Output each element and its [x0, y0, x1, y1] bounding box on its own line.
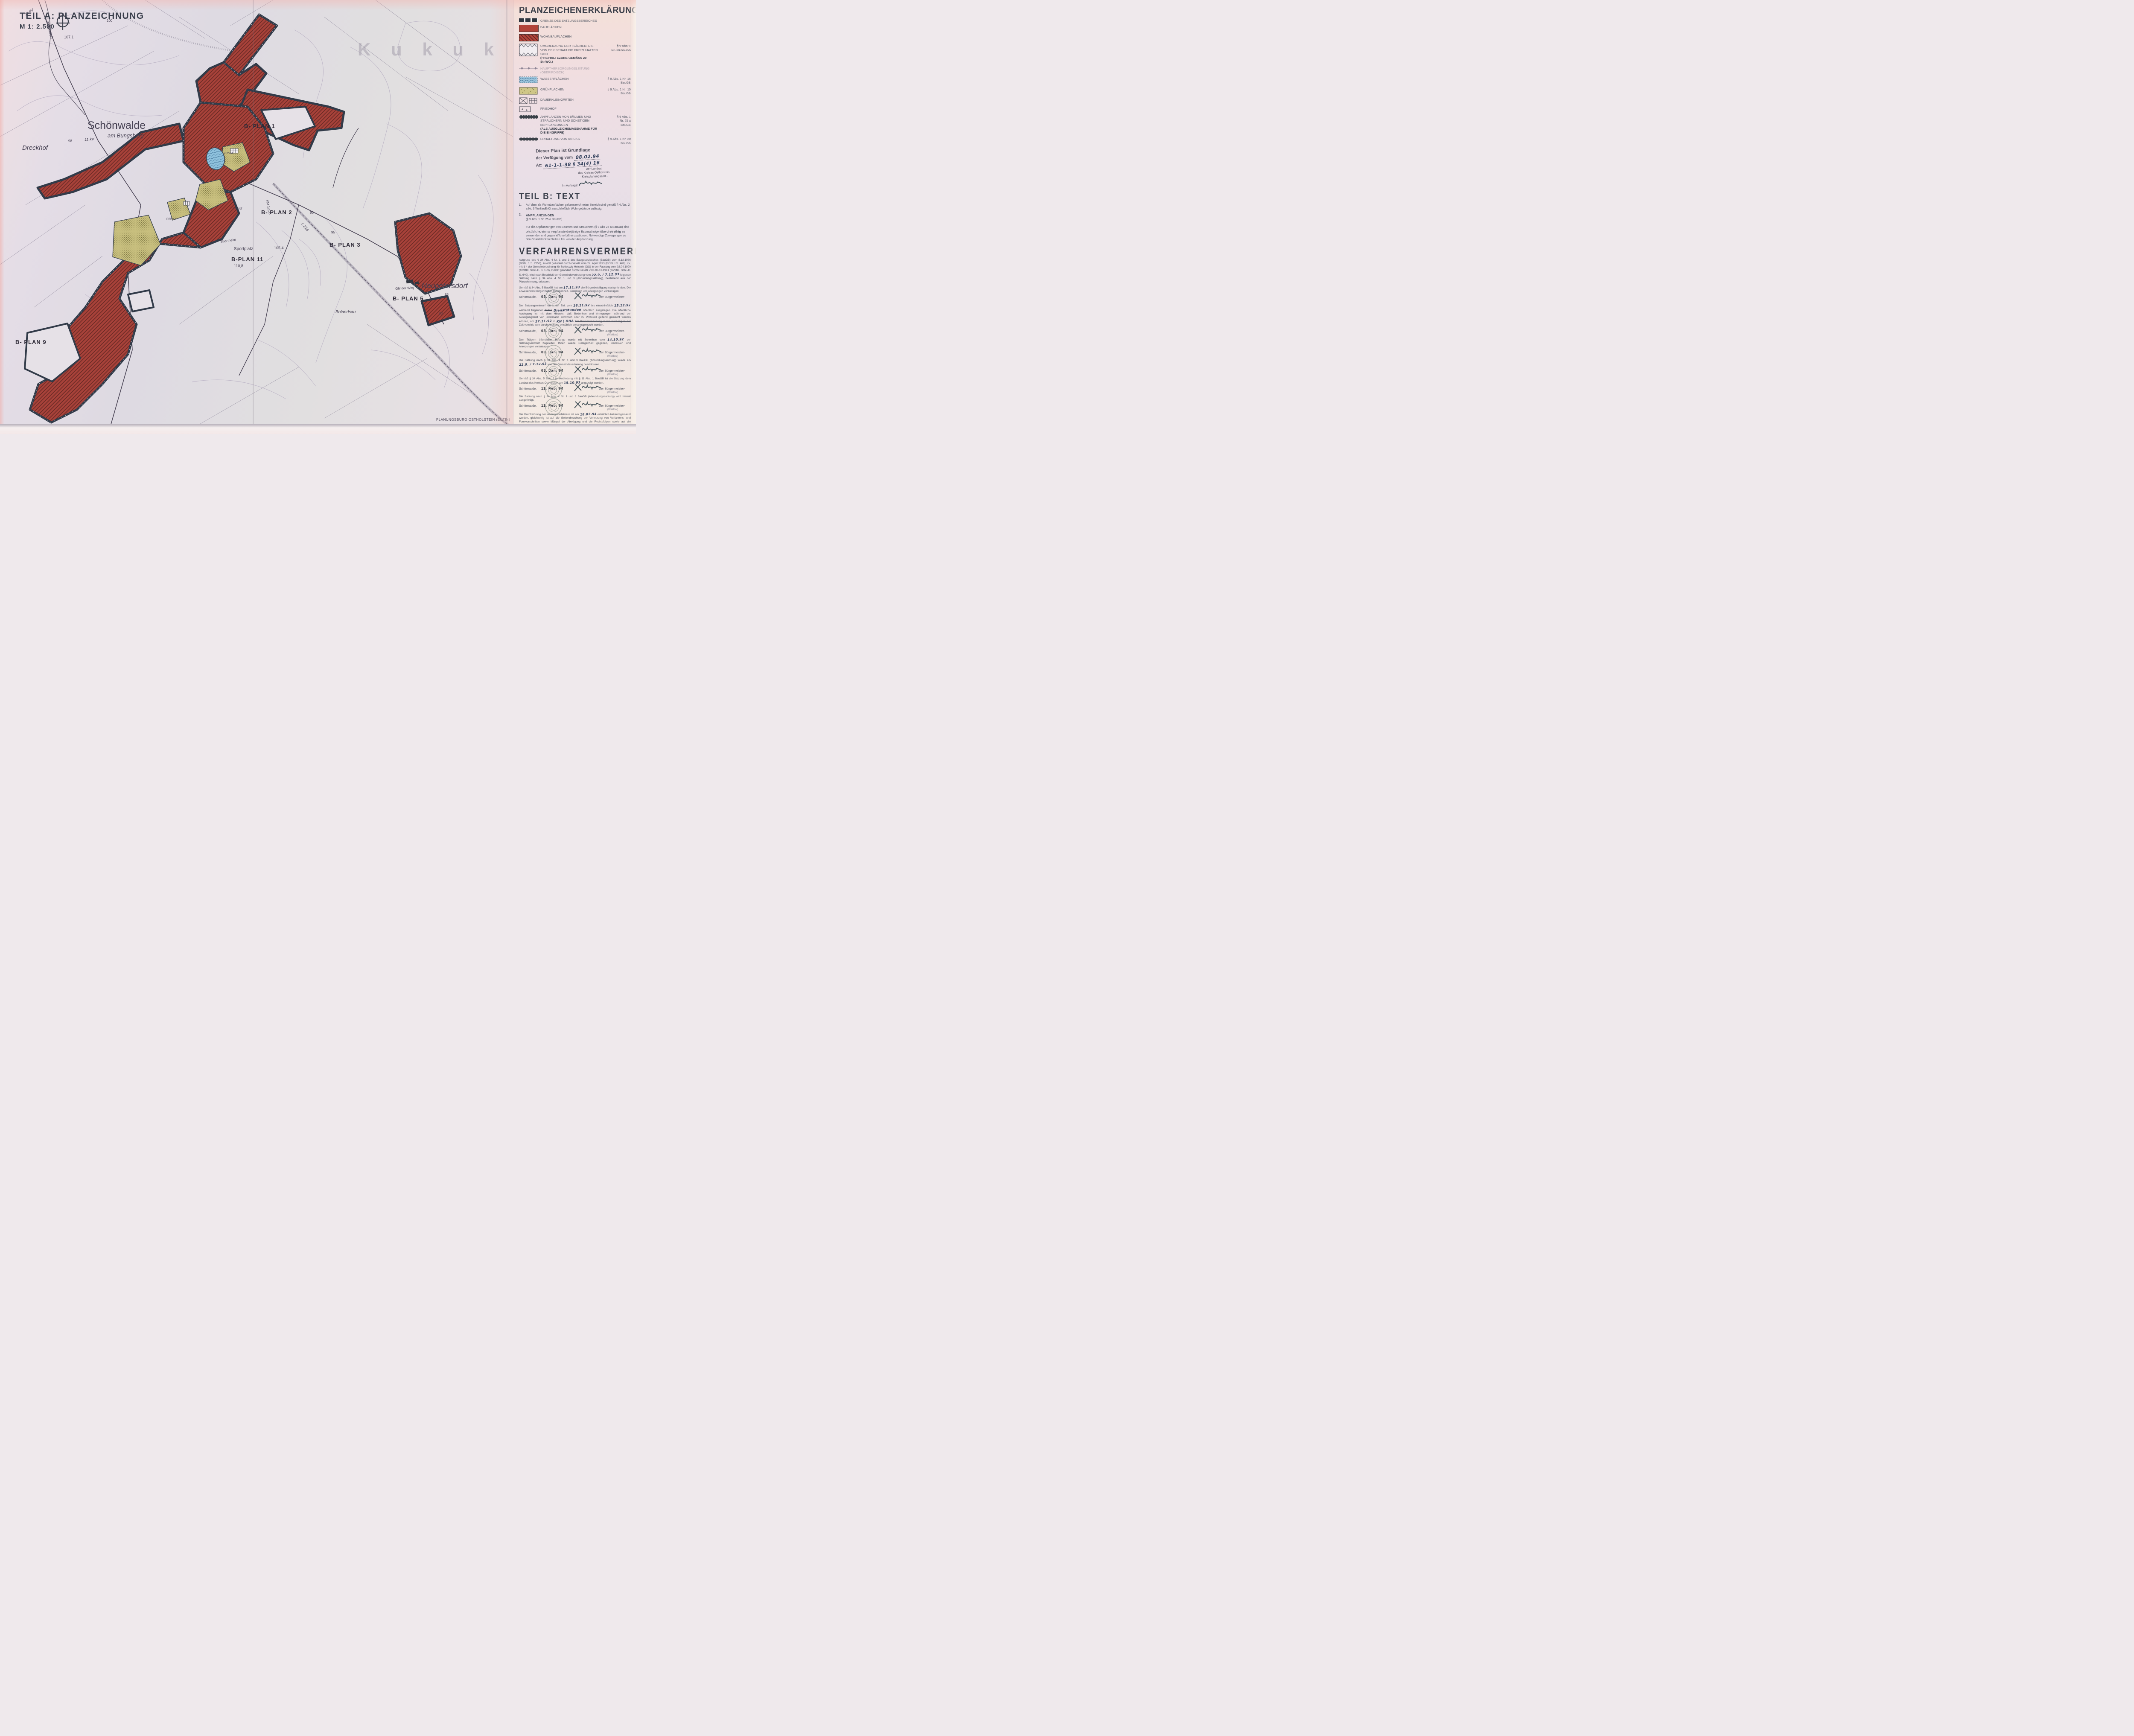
bauflaechen-swatch-icon: [519, 25, 539, 32]
signature-row-5: Schönwalde,11. Feb. 94Der Bürgermeister-…: [519, 387, 631, 394]
contour-80: 80: [439, 312, 443, 315]
privat-label-2: PRIVAT: [233, 207, 242, 210]
privat-label-3: PRIVAT: [166, 218, 176, 221]
part-a-title: TEIL A: PLANZEICHNUNG: [20, 11, 144, 21]
legend-heading: PLANZEICHENERKLÄRUNG: [519, 5, 631, 16]
wohnbauflaechen-swatch-icon: [519, 34, 539, 41]
boundary-swatch-icon: [519, 18, 538, 22]
fold-crease: [506, 0, 507, 424]
friedhof-swatch-icon: [519, 106, 538, 112]
sportplatz-label: Sportplatz: [234, 247, 253, 251]
legend-item-hauptversorgung: HAUPTVERSORGUNGSLEITUNG (OBERIRDISCH): [519, 66, 631, 75]
background-watermark: K u k u k: [358, 39, 501, 60]
legend-item-bauflaechen: BAUFLÄCHEN: [519, 25, 631, 32]
approval-stamp: Dieser Plan ist Grundlage der Verfügung …: [536, 146, 631, 188]
signature-icon: [574, 382, 603, 393]
privat-label-1: PRIVAT: [224, 152, 233, 155]
signature-icon: [574, 325, 603, 335]
legend-item-boundary: GRENZE DES SATZUNGSBEREICHES: [519, 18, 631, 23]
powerline-swatch-icon: [519, 66, 538, 70]
place-label-dreckhof: Dreckhof: [22, 144, 48, 151]
teil-b-item-2: 2. ANPFLANZUNGEN (§ 9 Abs. 1 Nr. 25 a Ba…: [519, 213, 631, 242]
legend-item-friedhof: FRIEDHOF: [519, 106, 631, 112]
signature-row-4: Schönwalde,03. Jan. 94Der Bürgermeister-…: [519, 369, 631, 376]
legend-item-wohnbauflaechen: WOHNBAUFLÄCHEN: [519, 34, 631, 41]
contour-85: 85: [445, 293, 449, 297]
signature-row-3: Schönwalde,03. Jan. 94Der Bürgermeister-…: [519, 350, 631, 358]
contour-95: 95: [331, 230, 335, 234]
place-label-neupetersdorf: Neupetersdorf: [422, 282, 468, 290]
contour-98: 98: [68, 139, 72, 143]
bplan5-label: B- PLAN 5: [393, 295, 424, 302]
scan-pink-band-left: [0, 0, 4, 434]
legend-item-anpflanzungen: ANPFLANZEN VON BÄUMEN UND STRÄUCHERN UND…: [519, 114, 631, 134]
legend-panel: PLANZEICHENERKLÄRUNG GRENZE DES SATZUNGS…: [513, 0, 636, 434]
legend-item-dauerkleingaerten: DAUERKLEINGÄRTEN: [519, 97, 631, 104]
legend-item-wasserflaechen: WASSERFLÄCHEN § 9 Abs. 1 Nr. 16 BauGB: [519, 76, 631, 85]
signature-icon: [574, 364, 603, 375]
built-area-ne-arm: [224, 15, 277, 75]
legend-item-freihaltezone: UMGRENZUNG DER FLÄCHEN, DIE VON DER BEBA…: [519, 44, 631, 64]
signature-row-6: Schönwalde,11. Feb. 94Der Bürgermeister-…: [519, 404, 631, 411]
signature-row-2: Schönwalde,03. Jan. 94Der Bürgermeister-…: [519, 329, 631, 336]
verfahren-p3: Der Satzungsentwurf hat in der Zeit vom …: [519, 303, 631, 327]
scan-pink-band-right: [490, 0, 513, 434]
powerline-label-11kv: 11 kV: [85, 137, 94, 142]
map-canvas: [0, 0, 513, 424]
built-up-areas: [30, 15, 461, 422]
bplan11-label: B-PLAN 11: [231, 256, 263, 262]
planting-beads-swatch-icon: [519, 114, 539, 119]
contour-90: 90: [310, 211, 314, 215]
bplan3-label: B- PLAN 3: [329, 242, 361, 248]
elevation-105-4: 105,4: [274, 246, 284, 250]
knick-beads-swatch-icon: [519, 137, 539, 142]
bplan1-label: B- PLAN 1: [244, 123, 275, 129]
kleingarten-swatch-icon: [519, 97, 539, 104]
plan-sheet: TEIL A: PLANZEICHNUNG M 1: 2.500 K u k u…: [0, 0, 636, 434]
small-white-pocket: [128, 290, 154, 312]
legend-item-gruenflaechen: GRÜNFLÄCHEN § 9 Abs. 1 Nr. 15 BauGB: [519, 87, 631, 96]
water-swatch-icon: [519, 76, 538, 83]
signature-icon: [578, 178, 603, 187]
place-label-am-bungsberg: am Bungsberg: [108, 132, 144, 139]
signature-row-1: Schönwalde,03. Jan. 94Der Bürgermeister-: [519, 295, 631, 302]
verfahren-p1: Aufgrund des § 34 Abs. 4 Nr. 1 und 3 des…: [519, 259, 631, 284]
contour-100: 100: [107, 19, 112, 23]
built-area-bplan5: [422, 296, 454, 325]
place-label-schoenwalde: Schönwalde: [87, 119, 146, 132]
legend-item-knicks: ERHALTUNG VON KNICKS § 9 Abs. 1 Nr. 20 B…: [519, 137, 631, 145]
verfahrensvermerke-section: VERFAHRENSVERMERKE Aufgrund des § 34 Abs…: [519, 246, 631, 434]
bplan2-label: B- PLAN 2: [261, 209, 292, 216]
sheet-bottom-edge: [0, 424, 636, 434]
signature-icon: [574, 346, 603, 356]
teil-b-heading: TEIL B: TEXT: [519, 192, 631, 202]
freihaltezone-swatch-icon: [519, 44, 538, 56]
green-swatch-icon: [519, 87, 538, 95]
elevation-110-8: 110,8: [234, 264, 243, 268]
fold-crease: [253, 0, 254, 424]
signature-icon: [574, 399, 603, 410]
verfahrensvermerke-heading: VERFAHRENSVERMERKE: [519, 246, 631, 257]
bolandsau-label: Bolandsau: [335, 310, 356, 315]
bplan9-label: B- PLAN 9: [15, 339, 47, 345]
teil-b-item-1: 1. Auf dem als Wohnbauflächen gekennzeic…: [519, 204, 631, 211]
elevation-107-1: 107,1: [64, 35, 74, 39]
plan-map: TEIL A: PLANZEICHNUNG M 1: 2.500 K u k u…: [0, 0, 513, 424]
signature-icon: [574, 291, 603, 301]
